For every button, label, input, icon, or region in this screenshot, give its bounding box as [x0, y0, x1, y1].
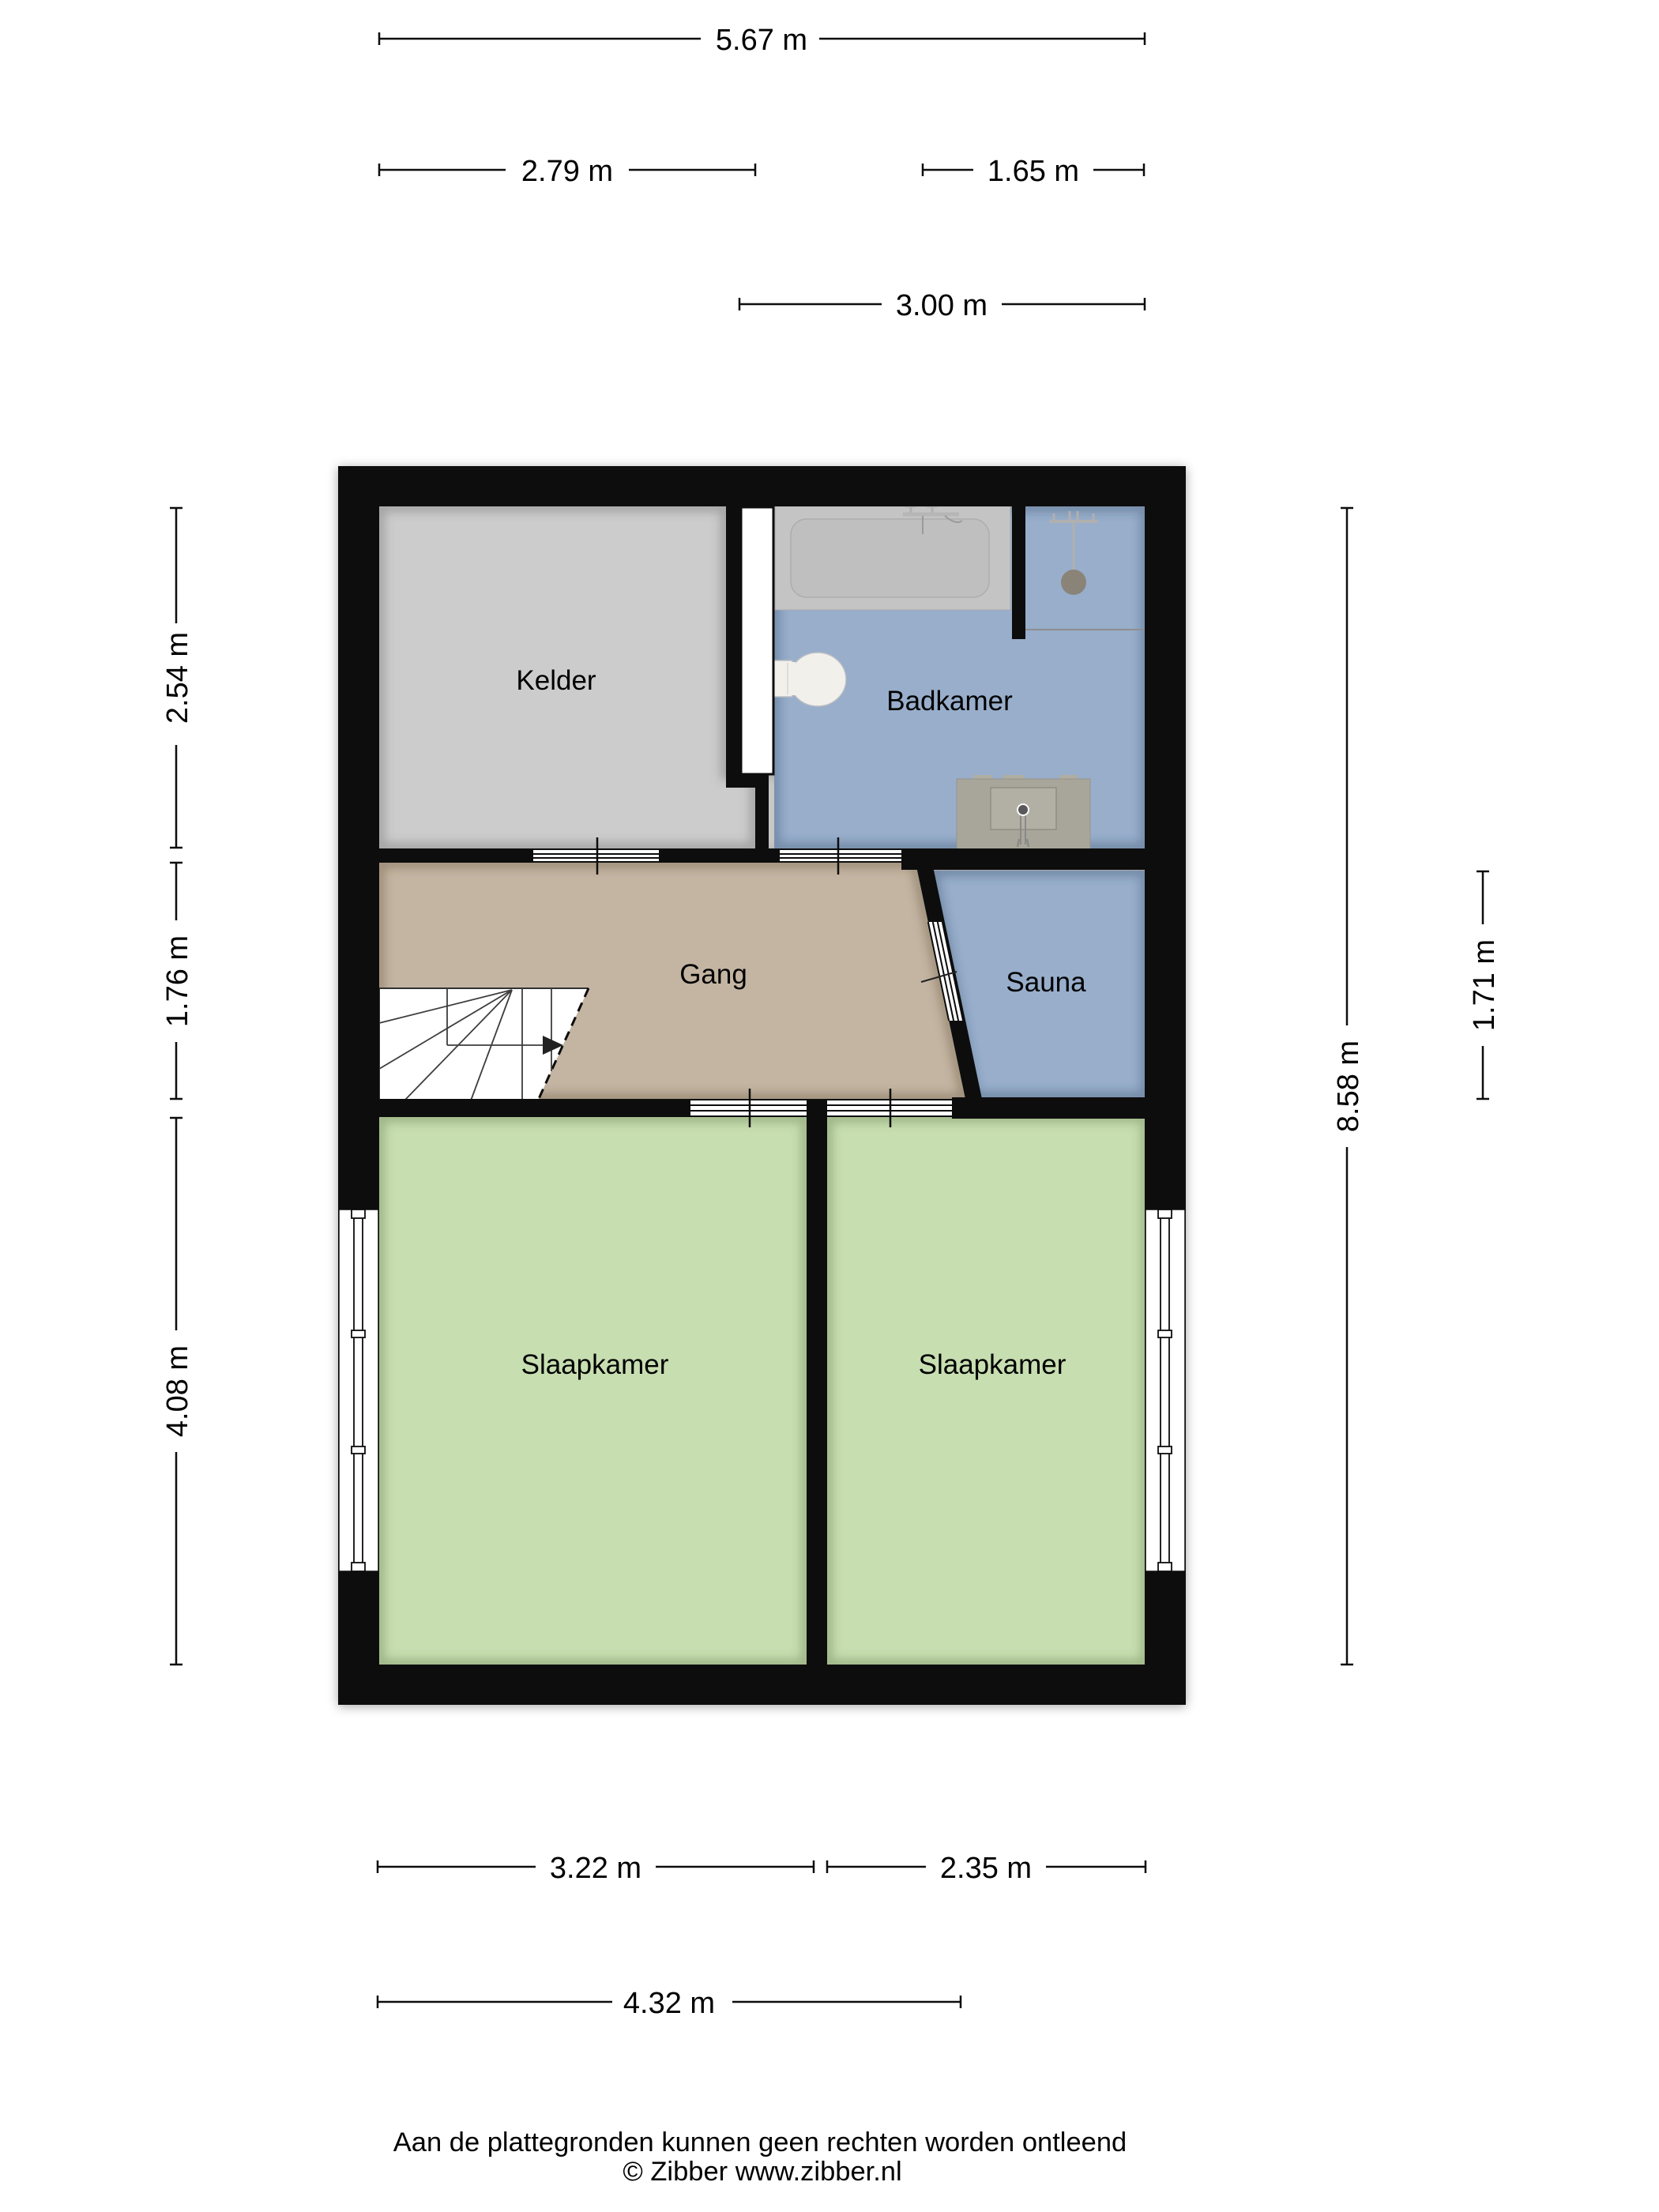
svg-text:5.67 m: 5.67 m	[716, 24, 807, 57]
svg-text:1.65 m: 1.65 m	[987, 155, 1079, 188]
svg-text:Kelder: Kelder	[516, 665, 596, 696]
svg-text:2.54 m: 2.54 m	[161, 632, 194, 724]
svg-text:3.22 m: 3.22 m	[550, 1852, 641, 1885]
svg-text:2.35 m: 2.35 m	[940, 1852, 1032, 1885]
svg-text:Badkamer: Badkamer	[886, 686, 1013, 717]
svg-text:Aan de plattegronden kunnen ge: Aan de plattegronden kunnen geen rechten…	[393, 2127, 1127, 2157]
svg-text:2.79 m: 2.79 m	[521, 155, 613, 188]
svg-text:1.76 m: 1.76 m	[161, 935, 194, 1027]
svg-text:4.08 m: 4.08 m	[161, 1345, 194, 1437]
svg-text:Sauna: Sauna	[1006, 967, 1086, 998]
svg-text:3.00 m: 3.00 m	[896, 289, 987, 322]
svg-text:© Zibber www.zibber.nl: © Zibber www.zibber.nl	[623, 2157, 901, 2187]
svg-text:4.32 m: 4.32 m	[623, 1987, 715, 2020]
svg-text:Slaapkamer: Slaapkamer	[521, 1349, 669, 1380]
svg-text:Slaapkamer: Slaapkamer	[919, 1349, 1066, 1380]
svg-text:1.71 m: 1.71 m	[1468, 939, 1501, 1031]
svg-text:8.58 m: 8.58 m	[1332, 1040, 1365, 1132]
svg-text:Gang: Gang	[679, 959, 747, 990]
